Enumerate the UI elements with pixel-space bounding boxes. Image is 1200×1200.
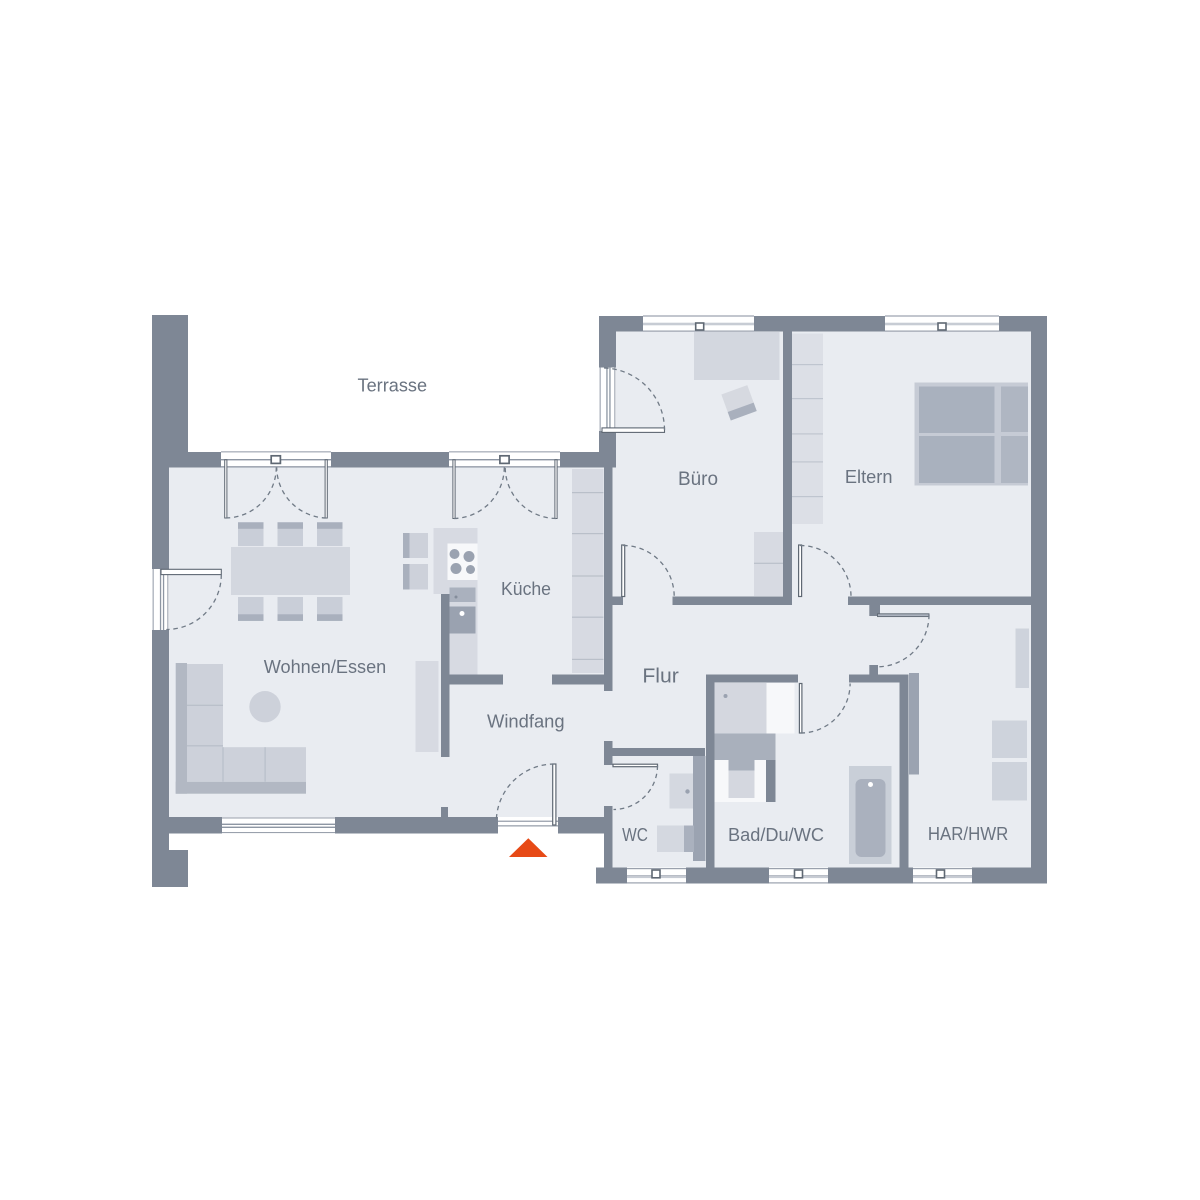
svg-text:Windfang: Windfang bbox=[487, 712, 565, 732]
svg-text:Bad/Du/WC: Bad/Du/WC bbox=[728, 825, 824, 845]
svg-text:Küche: Küche bbox=[501, 579, 551, 599]
svg-text:Eltern: Eltern bbox=[845, 467, 893, 487]
svg-text:HAR/HWR: HAR/HWR bbox=[928, 824, 1008, 844]
svg-text:Büro: Büro bbox=[678, 469, 718, 490]
svg-text:Wohnen/Essen: Wohnen/Essen bbox=[264, 657, 387, 677]
svg-text:Terrasse: Terrasse bbox=[358, 376, 428, 396]
svg-text:WC: WC bbox=[622, 825, 648, 845]
svg-text:Flur: Flur bbox=[642, 666, 679, 688]
